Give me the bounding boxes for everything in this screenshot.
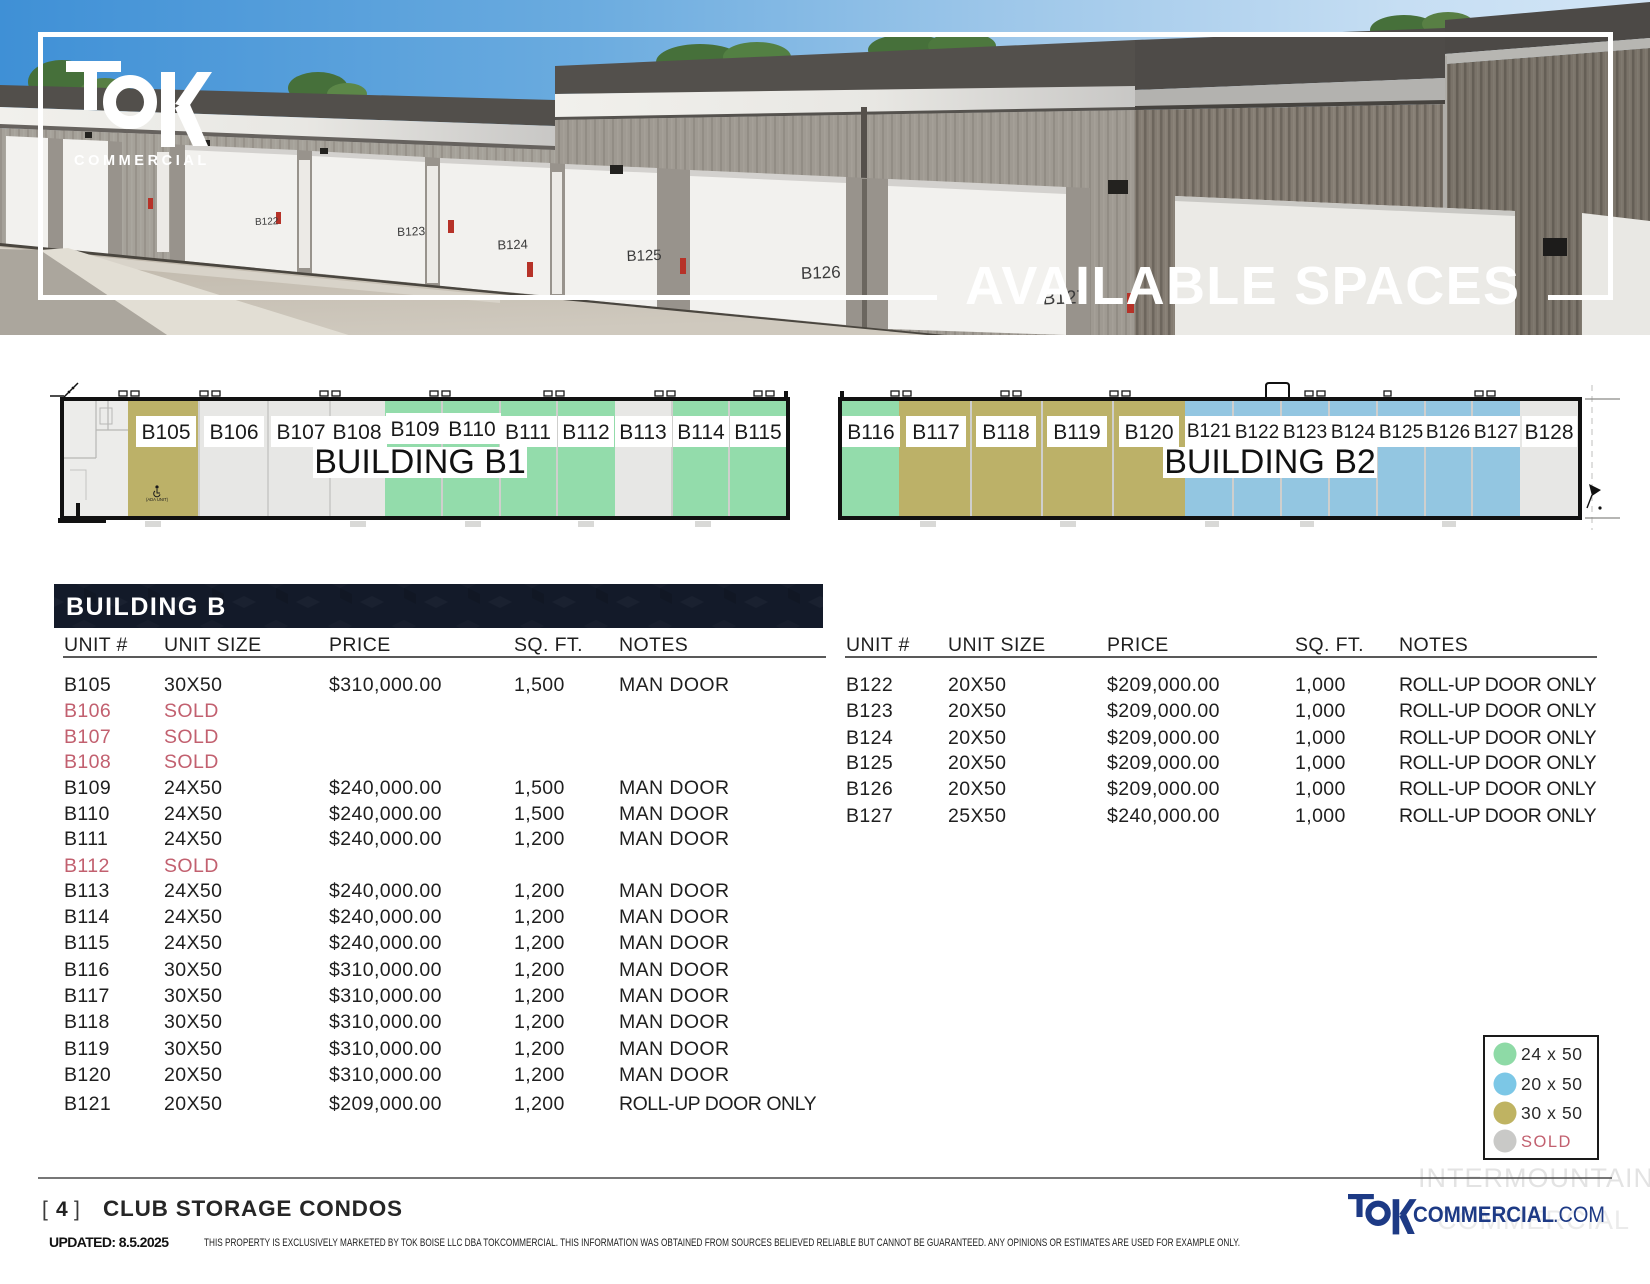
svg-text:$209,000.00: $209,000.00 [1107,727,1220,749]
svg-text:B121: B121 [1187,421,1231,442]
svg-text:B123: B123 [846,700,893,722]
svg-text:B111: B111 [505,421,551,444]
svg-text:MAN DOOR: MAN DOOR [619,777,729,799]
svg-text:$209,000.00: $209,000.00 [329,1093,442,1115]
svg-text:B113: B113 [64,880,110,902]
svg-text:B110: B110 [64,803,110,825]
svg-text:1,200: 1,200 [514,1011,565,1033]
svg-text:B127: B127 [846,805,893,827]
svg-text:B109: B109 [64,777,111,799]
svg-text:THIS PROPERTY IS EXCLUSIVELY M: THIS PROPERTY IS EXCLUSIVELY MARKETED BY… [204,1237,1240,1249]
svg-text:B106: B106 [64,700,111,722]
svg-text:1,200: 1,200 [514,1093,565,1115]
svg-text:$310,000.00: $310,000.00 [329,674,442,696]
svg-text:BUILDING B2: BUILDING B2 [1164,443,1376,481]
svg-text:B107: B107 [64,726,111,748]
svg-text:30X50: 30X50 [164,1011,222,1033]
svg-text:B114: B114 [64,906,110,928]
svg-text:MAN DOOR: MAN DOOR [619,828,729,850]
svg-text:1,200: 1,200 [514,1064,565,1086]
svg-text:20X50: 20X50 [164,1093,222,1115]
svg-text:$209,000.00: $209,000.00 [1107,674,1220,696]
svg-text:1,000: 1,000 [1295,805,1346,827]
svg-text:MAN DOOR: MAN DOOR [619,674,729,696]
svg-text:30X50: 30X50 [164,674,222,696]
svg-text:24X50: 24X50 [164,906,222,928]
svg-text:MAN DOOR: MAN DOOR [619,880,729,902]
svg-text:$240,000.00: $240,000.00 [329,828,442,850]
svg-text:1,500: 1,500 [514,674,565,696]
svg-text:ROLL-UP DOOR ONLY: ROLL-UP DOOR ONLY [1399,778,1597,800]
svg-text:UNIT #: UNIT # [64,634,128,656]
svg-text:1,200: 1,200 [514,985,565,1007]
svg-text:B125: B125 [846,752,893,774]
svg-text:B116: B116 [847,421,895,444]
svg-text:1,200: 1,200 [514,880,565,902]
svg-text:[: [ [42,1198,48,1221]
svg-text:$240,000.00: $240,000.00 [329,932,442,954]
svg-text:MAN DOOR: MAN DOOR [619,985,729,1007]
svg-text:ROLL-UP DOOR ONLY: ROLL-UP DOOR ONLY [1399,674,1597,696]
svg-text:$209,000.00: $209,000.00 [1107,778,1220,800]
svg-text:UNIT SIZE: UNIT SIZE [164,634,262,656]
svg-text:1,200: 1,200 [514,828,565,850]
svg-text:1,500: 1,500 [514,777,565,799]
svg-text:B124: B124 [497,237,528,253]
svg-text:24 x 50: 24 x 50 [1521,1044,1583,1064]
svg-text:.COM: .COM [1553,1202,1605,1227]
svg-text:B113: B113 [619,421,667,444]
svg-text:B126: B126 [1426,422,1470,443]
svg-text:$310,000.00: $310,000.00 [329,959,442,981]
svg-text:SOLD: SOLD [164,726,219,748]
svg-text:20X50: 20X50 [948,778,1006,800]
svg-text:B107: B107 [276,421,325,444]
svg-text:B124: B124 [846,727,893,749]
svg-text:30X50: 30X50 [164,985,222,1007]
svg-text:B117: B117 [912,421,960,444]
svg-text:$310,000.00: $310,000.00 [329,1064,442,1086]
svg-text:20X50: 20X50 [164,1064,222,1086]
svg-text:1,200: 1,200 [514,1038,565,1060]
svg-text:24X50: 24X50 [164,777,222,799]
svg-text:B112: B112 [562,421,610,444]
svg-text:1,500: 1,500 [514,803,565,825]
svg-text:B115: B115 [64,932,110,954]
svg-text:$310,000.00: $310,000.00 [329,985,442,1007]
svg-text:B126: B126 [801,263,841,283]
svg-text:1,000: 1,000 [1295,674,1346,696]
svg-text:B119: B119 [64,1038,110,1060]
svg-text:ROLL-UP DOOR ONLY: ROLL-UP DOOR ONLY [619,1093,817,1115]
svg-text:MAN DOOR: MAN DOOR [619,1011,729,1033]
svg-text:B120: B120 [1124,421,1173,444]
svg-text:]: ] [74,1198,80,1221]
svg-text:1,200: 1,200 [514,959,565,981]
svg-text:24X50: 24X50 [164,932,222,954]
svg-text:B111: B111 [64,828,108,850]
svg-text:B125: B125 [626,247,662,265]
svg-text:24X50: 24X50 [164,828,222,850]
svg-text:B108: B108 [64,751,111,773]
svg-text:1,200: 1,200 [514,932,565,954]
svg-text:SOLD: SOLD [164,855,219,877]
svg-text:MAN DOOR: MAN DOOR [619,1064,729,1086]
svg-text:B122: B122 [846,674,893,696]
svg-text:BUILDING B: BUILDING B [66,593,227,621]
svg-text:NOTES: NOTES [1399,634,1468,656]
svg-text:B117: B117 [64,985,110,1007]
svg-text:ROLL-UP DOOR ONLY: ROLL-UP DOOR ONLY [1399,727,1597,749]
svg-text:BUILDING B1: BUILDING B1 [314,443,526,481]
svg-text:24X50: 24X50 [164,803,222,825]
svg-text:B121: B121 [64,1093,111,1115]
svg-text:B126: B126 [846,778,893,800]
svg-text:SQ. FT.: SQ. FT. [1295,634,1364,656]
svg-text:20X50: 20X50 [948,674,1006,696]
svg-text:B110: B110 [448,418,496,441]
svg-text:4: 4 [56,1198,68,1221]
svg-text:B106: B106 [209,421,258,444]
svg-text:B108: B108 [332,421,381,444]
svg-text:SOLD: SOLD [164,751,219,773]
svg-text:B105: B105 [141,421,190,444]
svg-text:B124: B124 [1331,422,1376,443]
svg-text:COMMERCIAL: COMMERCIAL [74,153,210,169]
svg-text:B115: B115 [734,421,782,444]
svg-text:1,000: 1,000 [1295,727,1346,749]
svg-text:30 x 50: 30 x 50 [1521,1103,1583,1123]
svg-text:ROLL-UP DOOR ONLY: ROLL-UP DOOR ONLY [1399,805,1597,827]
svg-text:B109: B109 [390,418,439,441]
svg-text:ROLL-UP DOOR ONLY: ROLL-UP DOOR ONLY [1399,752,1597,774]
svg-text:B112: B112 [64,855,110,877]
svg-text:B128: B128 [1524,421,1573,444]
svg-text:NOTES: NOTES [619,634,688,656]
svg-text:SQ. FT.: SQ. FT. [514,634,583,656]
svg-text:25X50: 25X50 [948,805,1006,827]
svg-text:$240,000.00: $240,000.00 [329,880,442,902]
svg-text:PRICE: PRICE [329,634,391,656]
svg-text:B122: B122 [255,216,279,228]
svg-text:B122: B122 [1235,422,1279,443]
svg-text:UNIT SIZE: UNIT SIZE [948,634,1046,656]
svg-text:MAN DOOR: MAN DOOR [619,932,729,954]
svg-text:$240,000.00: $240,000.00 [329,906,442,928]
svg-text:PRICE: PRICE [1107,634,1169,656]
svg-text:ROLL-UP DOOR ONLY: ROLL-UP DOOR ONLY [1399,700,1597,722]
svg-text:AVAILABLE SPACES: AVAILABLE SPACES [965,256,1519,316]
svg-text:B123: B123 [1283,422,1327,443]
svg-text:SOLD: SOLD [164,700,219,722]
svg-text:24X50: 24X50 [164,880,222,902]
svg-text:$240,000.00: $240,000.00 [329,803,442,825]
svg-text:1,000: 1,000 [1295,778,1346,800]
svg-text:$209,000.00: $209,000.00 [1107,700,1220,722]
svg-text:UNIT #: UNIT # [846,634,910,656]
svg-text:B119: B119 [1053,421,1101,444]
svg-text:30X50: 30X50 [164,959,222,981]
svg-text:20 x 50: 20 x 50 [1521,1074,1583,1094]
svg-text:B118: B118 [64,1011,110,1033]
svg-text:MAN DOOR: MAN DOOR [619,1038,729,1060]
svg-text:20X50: 20X50 [948,700,1006,722]
svg-text:SOLD: SOLD [1521,1133,1572,1151]
svg-text:30X50: 30X50 [164,1038,222,1060]
svg-text:B123: B123 [397,224,426,239]
svg-text:B125: B125 [1379,422,1423,443]
svg-text:$240,000.00: $240,000.00 [1107,805,1220,827]
svg-text:(ADA UNIT): (ADA UNIT) [146,497,169,502]
svg-text:MAN DOOR: MAN DOOR [619,959,729,981]
svg-text:1,000: 1,000 [1295,700,1346,722]
svg-text:1,000: 1,000 [1295,752,1346,774]
svg-text:$240,000.00: $240,000.00 [329,777,442,799]
svg-text:COMMERCIAL: COMMERCIAL [1413,1202,1554,1227]
svg-text:B116: B116 [64,959,110,981]
svg-text:$209,000.00: $209,000.00 [1107,752,1220,774]
svg-text:$310,000.00: $310,000.00 [329,1011,442,1033]
svg-text:1,200: 1,200 [514,906,565,928]
svg-text:B114: B114 [677,421,725,444]
svg-text:B105: B105 [64,674,111,696]
svg-text:20X50: 20X50 [948,752,1006,774]
svg-text:CLUB STORAGE CONDOS: CLUB STORAGE CONDOS [103,1196,403,1221]
svg-text:B127: B127 [1474,422,1518,443]
svg-text:MAN DOOR: MAN DOOR [619,803,729,825]
svg-text:20X50: 20X50 [948,727,1006,749]
svg-text:B118: B118 [982,421,1030,444]
svg-text:$310,000.00: $310,000.00 [329,1038,442,1060]
svg-text:MAN DOOR: MAN DOOR [619,906,729,928]
svg-text:B120: B120 [64,1064,111,1086]
svg-text:UPDATED: 8.5.2025: UPDATED: 8.5.2025 [49,1234,169,1250]
